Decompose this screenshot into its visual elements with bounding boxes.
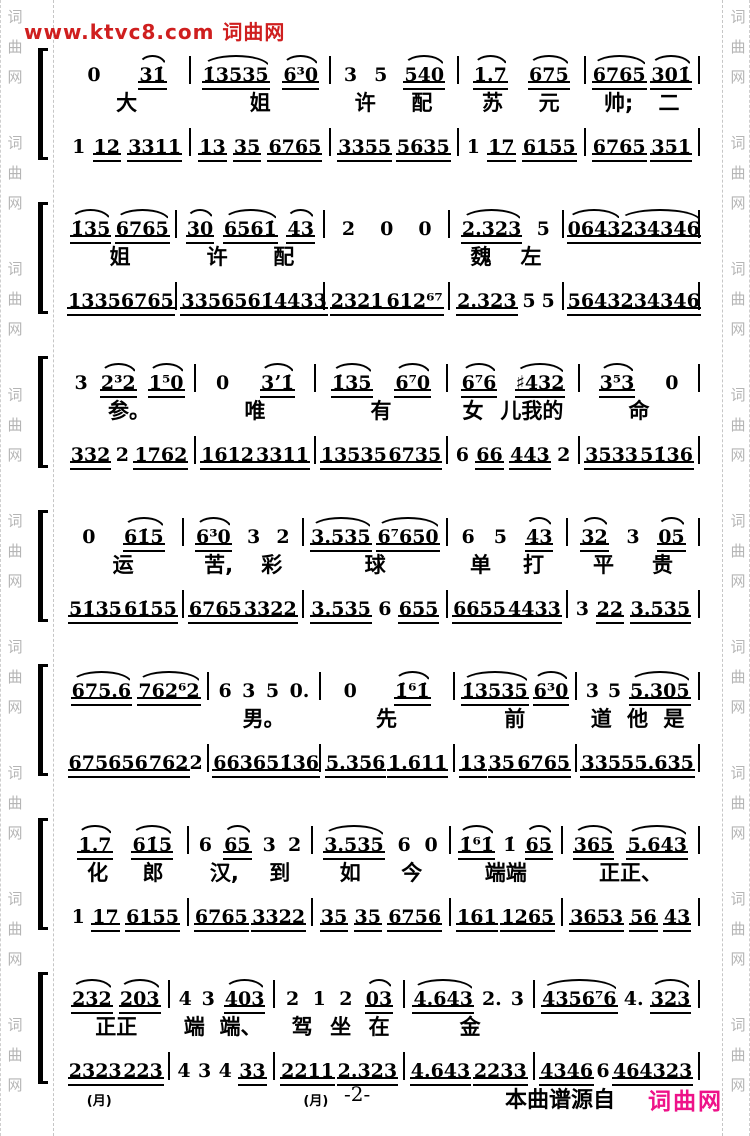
lyric-syllable: 魏: [471, 241, 492, 271]
barline: [698, 590, 700, 618]
lyrics-measure: 参。: [64, 395, 194, 425]
note-group: 3: [511, 988, 524, 1010]
lyric-syllable: 正正: [95, 1011, 137, 1041]
measure: 2.3235: [450, 218, 561, 240]
lyric-syllable: 许: [355, 87, 376, 117]
lyric-syllable: 驾: [292, 1011, 313, 1041]
watermark-text: 曲: [728, 666, 748, 687]
note-group: 5.356: [326, 752, 386, 774]
barline-spacer: [698, 549, 700, 577]
note-group: 6636: [213, 752, 266, 774]
melody-row: 32³21⁵003ʼ1̇1̇356⁷06⁷6♯4323⁵30: [64, 352, 700, 394]
measure: 67653322: [184, 598, 302, 620]
note-group: 5.305: [630, 680, 690, 702]
measure: 675.6762⁶2: [64, 680, 207, 702]
lyrics-measure: 驾坐在: [277, 1011, 405, 1041]
measure: 6⁷6♯432: [448, 372, 578, 394]
note-group: 3533: [585, 444, 638, 466]
note-group: 30: [187, 218, 213, 240]
watermark-text: 曲: [728, 36, 748, 57]
source-site-logo: 词曲网: [648, 1082, 723, 1116]
note-group: 5635: [397, 136, 450, 158]
lyrics-measure: 魏左: [450, 241, 562, 271]
note-group: 4.643: [413, 988, 473, 1010]
note-group: 351: [651, 136, 691, 158]
watermark-text: 网: [5, 696, 25, 717]
lyric-syllable: 儿我的: [500, 395, 563, 425]
note-group: 43: [526, 526, 552, 548]
measure: 22112.323(月): [275, 1060, 403, 1082]
lyrics-row: 男。先前道他是: [64, 704, 700, 732]
lyric-syllable: 打: [523, 549, 544, 579]
note-group: 6735: [388, 444, 441, 466]
measure: 353351̇36: [580, 444, 698, 466]
lyric-syllable: 道: [591, 703, 612, 733]
note-group: 5: [266, 680, 279, 702]
watermark-text: 词: [5, 132, 25, 153]
lyrics-measure: 前: [454, 703, 575, 733]
accomp-row: 133567653356561̇44332321612⁶⁷2.323555643…: [64, 270, 700, 312]
lyric-syllable: 姐: [109, 241, 130, 271]
note-group: 6765: [116, 218, 169, 240]
measure: 36535643: [563, 906, 698, 928]
note-group: 1.611: [388, 752, 448, 774]
system-bracket: [38, 972, 48, 1084]
note-group: 403: [225, 988, 265, 1010]
measure: 1123311: [64, 136, 189, 158]
system-bracket: [38, 202, 48, 314]
note-group: 4: [219, 1060, 232, 1082]
measure: 2323223(月): [64, 1060, 168, 1082]
note-group: 6756: [388, 906, 441, 928]
note-group: 05: [658, 526, 684, 548]
barline-spacer: [698, 703, 700, 731]
note-group: 2233: [474, 1060, 527, 1082]
note-group: 2.323: [338, 1060, 398, 1082]
note-group: 43: [287, 218, 313, 240]
measure: 6³032: [184, 526, 302, 548]
page-number: -2-: [344, 1082, 370, 1106]
accomp-row: 6756567622663651̇365.3561.61113356765335…: [64, 732, 700, 774]
barline: [698, 436, 700, 464]
note-group: 3⁵3: [600, 372, 635, 394]
note-group: 301̇: [651, 64, 691, 86]
barline: [698, 826, 700, 854]
lyrics-measure: 化郎: [64, 857, 187, 887]
note-group: 1̇35: [332, 372, 372, 394]
lyric-syllable: 端端: [485, 857, 527, 887]
lyric-syllable: 前: [504, 703, 525, 733]
note-group: 3311: [256, 444, 309, 466]
lyrics-measure: 苏元: [458, 87, 583, 117]
measure: 4.6432.3: [405, 988, 533, 1010]
page-footer: -2- 本曲谱源自 词曲网: [0, 1082, 750, 1122]
note-group: 1: [72, 906, 85, 928]
barline: [698, 898, 700, 926]
note-group: 223: [123, 1060, 163, 1082]
lyrics-measure: 大: [64, 87, 189, 117]
watermark-text: 网: [5, 444, 25, 465]
melody-row: 031̇1̇35356³0355401.76756765301̇: [64, 44, 700, 86]
measure: 6543: [448, 526, 566, 548]
note-group: 5: [494, 526, 507, 548]
lyrics-measure: 平贵: [568, 549, 698, 579]
note-group: 675: [529, 64, 569, 86]
note-group: 3322: [244, 598, 297, 620]
note-group: 3: [576, 598, 589, 620]
note-group: 6: [596, 1060, 609, 1082]
barline-spacer: [698, 857, 700, 885]
note-group: 22: [597, 598, 623, 620]
measure: 16123311: [196, 444, 314, 466]
score-page: { "page": { "header": "www.ktvc8.com 词曲网…: [0, 0, 750, 1136]
watermark-text: 词: [728, 762, 748, 783]
note-group: 2321: [331, 290, 384, 312]
note-group: 17: [92, 906, 118, 928]
measure: 2.32355: [450, 290, 561, 312]
system-bracket: [38, 356, 48, 468]
note-group: 3.535: [324, 834, 384, 856]
lyrics-measure: 许配: [331, 87, 456, 117]
accomp-row: 51̇3561̇55676533223.5356655665544333223.…: [64, 578, 700, 620]
note-group: 1⁵0: [149, 372, 184, 394]
barline: [698, 1052, 700, 1080]
note-group: 2: [557, 444, 570, 466]
watermark-text: 曲: [5, 918, 25, 939]
watermark-text: 曲: [5, 792, 25, 813]
note-group: 1̇: [503, 834, 516, 856]
note-group: 35: [489, 752, 515, 774]
measure: 33221762: [64, 444, 194, 466]
system-bracket: [38, 818, 48, 930]
note-group: 51̇36: [640, 444, 693, 466]
measure: 232203: [64, 988, 168, 1010]
measure: 43403: [170, 988, 274, 1010]
note-group: 12: [94, 136, 120, 158]
lyric-syllable: 元: [539, 87, 560, 117]
lyrics-measure: 如今: [313, 857, 448, 887]
watermark-text: 词: [5, 510, 25, 531]
note-group: 2: [190, 752, 203, 774]
note-group: 3: [626, 526, 639, 548]
lyrics-measure: 单打: [448, 549, 566, 579]
note-group: 6: [462, 526, 475, 548]
note-group: 61̇55: [124, 598, 177, 620]
note-group: 4356⁷6: [542, 988, 616, 1010]
watermark-text: 网: [728, 570, 748, 591]
measure: 0643234346: [564, 218, 698, 240]
note-group: 1.7: [474, 64, 507, 86]
accomp-row: 11761556765332235356756161126536535643: [64, 886, 700, 928]
watermark-text: 网: [5, 318, 25, 339]
note-group: 35: [355, 906, 381, 928]
measure: 13356765: [455, 752, 576, 774]
measure: 66532: [189, 834, 312, 856]
lyrics-row: 化郎汉,到如今端端正正、: [64, 858, 700, 886]
note-group: 1̇⁶1̇: [395, 680, 430, 702]
barline: [698, 364, 700, 392]
note-group: 35: [234, 136, 260, 158]
note-group: 3: [263, 834, 276, 856]
melody-row: 1̇356765306561̇432002.32350643234346: [64, 198, 700, 240]
note-group: 2.323: [462, 218, 522, 240]
lyric-syllable: 大: [116, 87, 137, 117]
lyric-syllable: 唯: [244, 395, 265, 425]
lyrics-measure: 苦,彩: [184, 549, 302, 579]
measure: 1̇35356³0: [455, 680, 576, 702]
lyric-syllable: 如: [340, 857, 361, 887]
watermark-text: 网: [728, 66, 748, 87]
lyrics-row: 运苦,彩球单打平贵: [64, 550, 700, 578]
note-group: 4.: [624, 988, 644, 1010]
note-group: 5.635: [634, 752, 694, 774]
melody-row: 675.6762⁶26350.01̇⁶1̇1̇35356³0355.305: [64, 660, 700, 702]
note-group: 1762: [134, 444, 187, 466]
watermark-text: 曲: [5, 540, 25, 561]
lyrics-row: 参。唯有女儿我的命: [64, 396, 700, 424]
watermark-text: 词: [728, 6, 748, 27]
watermark-text: 曲: [728, 1044, 748, 1065]
note-group: 0: [380, 218, 393, 240]
note-group: 65: [224, 834, 250, 856]
note-group: 51̇35: [69, 598, 122, 620]
watermark-text: 词: [5, 888, 25, 909]
note-group: 234346: [620, 218, 699, 240]
lyric-syllable: 参。: [108, 395, 150, 425]
lyric-syllable: 平: [593, 549, 614, 579]
measure: 32³21⁵0: [64, 372, 194, 394]
note-group: 6765: [189, 598, 242, 620]
lyric-syllable: 他: [627, 703, 648, 733]
note-group: 6765: [121, 290, 174, 312]
watermark-text: 词: [5, 636, 25, 657]
watermark-text: 词: [728, 132, 748, 153]
measure: 43466464323: [535, 1060, 698, 1082]
note-group: 43: [664, 906, 690, 928]
measure: 1.761̇5: [64, 834, 187, 856]
lyric-syllable: 化: [87, 857, 108, 887]
note-group: 3: [242, 680, 255, 702]
watermark-column-right: 词曲网词曲网词曲网词曲网词曲网词曲网词曲网词曲网词曲网: [722, 0, 750, 1136]
note-group: 161: [457, 906, 497, 928]
note-group: 4346: [540, 1060, 593, 1082]
note-group: 31̇: [139, 64, 165, 86]
measure: 66554433: [448, 598, 566, 620]
measure: 5643234346: [564, 290, 698, 312]
watermark-text: 网: [728, 948, 748, 969]
note-group: 655: [399, 598, 439, 620]
note-group: 464323: [613, 1060, 692, 1082]
watermark-text: 曲: [5, 162, 25, 183]
lyrics-measure: 运: [64, 549, 182, 579]
note-group: 5.643: [627, 834, 687, 856]
measure: 031̇: [64, 64, 189, 86]
note-group: 1: [313, 988, 326, 1010]
lyric-syllable: 今: [401, 857, 422, 887]
note-group: 3653: [570, 906, 623, 928]
system-bracket: [38, 48, 48, 160]
lyric-syllable: 命: [628, 395, 649, 425]
note-group: 3.535: [311, 598, 371, 620]
site-header: www.ktvc8.com 词曲网: [24, 16, 285, 45]
watermark-text: 网: [728, 444, 748, 465]
measure: 1611265: [451, 906, 561, 928]
note-group: 1.7: [78, 834, 111, 856]
note-group: 0: [344, 680, 357, 702]
note-group: 03: [366, 988, 392, 1010]
note-group: 4: [179, 988, 192, 1010]
measure: 3.53560: [313, 834, 448, 856]
lyrics-measure: 正正、: [563, 857, 698, 887]
barline-spacer: [698, 87, 700, 115]
system-bracket: [38, 510, 48, 622]
measure: 3356561̇4433: [177, 290, 323, 312]
note-group: 2323: [69, 1060, 122, 1082]
measure: 1̇35356³0: [191, 64, 329, 86]
melody-row: 1.761̇5665323.535601̇⁶1̇1̇653655.643: [64, 814, 700, 856]
note-group: 6: [199, 834, 212, 856]
note-group: 3: [202, 988, 215, 1010]
watermark-text: 曲: [728, 414, 748, 435]
lyrics-measure: 命: [580, 395, 698, 425]
watermark-text: 词: [728, 258, 748, 279]
watermark-text: 曲: [728, 540, 748, 561]
watermark-text: 词: [728, 888, 748, 909]
note-group: 33: [239, 1060, 265, 1082]
note-group: 13: [199, 136, 225, 158]
note-group: 35: [321, 906, 347, 928]
note-group: 1̇3535: [462, 680, 528, 702]
note-group: 540: [404, 64, 444, 86]
lyric-syllable: 先: [376, 703, 397, 733]
note-group: 5643: [568, 290, 621, 312]
measure: 13356765: [64, 290, 175, 312]
note-group: 6155: [523, 136, 576, 158]
watermark-text: 网: [728, 696, 748, 717]
lyric-syllable: 苦,: [204, 549, 233, 579]
watermark-text: 词: [5, 1014, 25, 1035]
watermark-text: 网: [5, 948, 25, 969]
note-group: 2: [342, 218, 355, 240]
note-group: 3ʼ1̇: [261, 372, 294, 394]
note-group: 3: [247, 526, 260, 548]
note-group: 2: [339, 988, 352, 1010]
note-group: 5: [537, 218, 550, 240]
measure: 1.7675: [459, 64, 584, 86]
lyrics-measure: 道他是: [577, 703, 698, 733]
system-bracket: [38, 664, 48, 776]
music-system: 1̇356765306561̇432002.32350643234346姐许配魏…: [64, 198, 700, 316]
note-group: 6155: [126, 906, 179, 928]
watermark-text: 词: [5, 6, 25, 27]
music-system: 32³21⁵003ʼ1̇1̇356⁷06⁷6♯4323⁵30参。唯有女儿我的命3…: [64, 352, 700, 470]
lyric-syllable: 左: [520, 241, 541, 271]
note-group: 234346: [620, 290, 699, 312]
barline-spacer: [534, 1011, 536, 1039]
lyrics-row: 大姐许配苏元帅;二: [64, 88, 700, 116]
note-group: 6: [218, 680, 231, 702]
measure: 5.3561.611: [321, 752, 453, 774]
note-group: 6³0: [534, 680, 569, 702]
music-system: 23220343403212034.6432.34356⁷64.323正正端端、…: [64, 968, 700, 1086]
lyrics-measure: 唯: [196, 395, 314, 425]
measure: 33555635: [331, 136, 456, 158]
watermark-text: 网: [728, 192, 748, 213]
lyrics-measure: 姐: [64, 241, 176, 271]
measure: 3⁵30: [580, 372, 698, 394]
lyrics-measure: 正正: [64, 1011, 168, 1041]
note-group: 1̇35: [71, 218, 111, 240]
note-group: 2.323: [457, 290, 517, 312]
note-group: 2: [286, 988, 299, 1010]
measure: 01̇⁶1̇: [321, 680, 453, 702]
note-group: 3: [75, 372, 88, 394]
lyric-syllable: 坐: [330, 1011, 351, 1041]
barline: [698, 56, 700, 84]
watermark-text: 词: [728, 636, 748, 657]
watermark-text: 曲: [5, 414, 25, 435]
note-group: 332: [71, 444, 111, 466]
measure: 6765351: [586, 136, 698, 158]
note-group: 17: [488, 136, 514, 158]
note-group: 61̇5: [132, 834, 172, 856]
note-group: 4.643: [411, 1060, 471, 1082]
note-group: 66: [476, 444, 502, 466]
measure: 67653322: [189, 906, 312, 928]
note-group: 0643: [568, 218, 621, 240]
note-group: 762: [149, 752, 189, 774]
note-group: 6765: [593, 136, 646, 158]
watermark-text: 网: [5, 192, 25, 213]
measure: 21203: [275, 988, 403, 1010]
note-group: 3355: [581, 752, 634, 774]
note-group: 675.6: [72, 680, 132, 702]
lyric-syllable: 姐: [250, 87, 271, 117]
note-group: 0: [665, 372, 678, 394]
measure: 4356⁷64.323: [535, 988, 698, 1010]
lyric-syllable: 女: [462, 395, 483, 425]
watermark-text: 曲: [728, 288, 748, 309]
watermark-text: 网: [5, 66, 25, 87]
lyric-syllable: 到: [269, 857, 290, 887]
measure: 4.6432233: [405, 1060, 533, 1082]
music-system: 1.761̇5665323.535601̇⁶1̇1̇653655.643化郎汉,…: [64, 814, 700, 932]
note-group: 1: [72, 136, 85, 158]
lyric-syllable: 汉,: [210, 857, 239, 887]
barline-spacer: [562, 241, 564, 269]
note-group: 2: [288, 834, 301, 856]
note-group: 3322: [252, 906, 305, 928]
lyric-syllable: 二: [658, 87, 679, 117]
measure: 3.5356⁷650: [304, 526, 446, 548]
note-group: 13: [460, 752, 486, 774]
watermark-text: 网: [5, 822, 25, 843]
note-group: 6: [398, 834, 411, 856]
measure: 061̇5: [64, 526, 182, 548]
note-group: 3: [198, 1060, 211, 1082]
accomp-row: 33221762161233111353567356664432353351̇3…: [64, 424, 700, 466]
lyric-syllable: 贵: [652, 549, 673, 579]
note-group: 1335: [68, 290, 121, 312]
note-group: 2: [116, 444, 129, 466]
note-group: 4433: [508, 598, 561, 620]
note-group: 56: [630, 906, 656, 928]
barline-spacer: [698, 241, 700, 269]
lyric-syllable: 配: [273, 241, 294, 271]
measure: 35356756: [313, 906, 448, 928]
lyrics-measure: 先: [321, 703, 453, 733]
note-group: 4433: [274, 290, 327, 312]
